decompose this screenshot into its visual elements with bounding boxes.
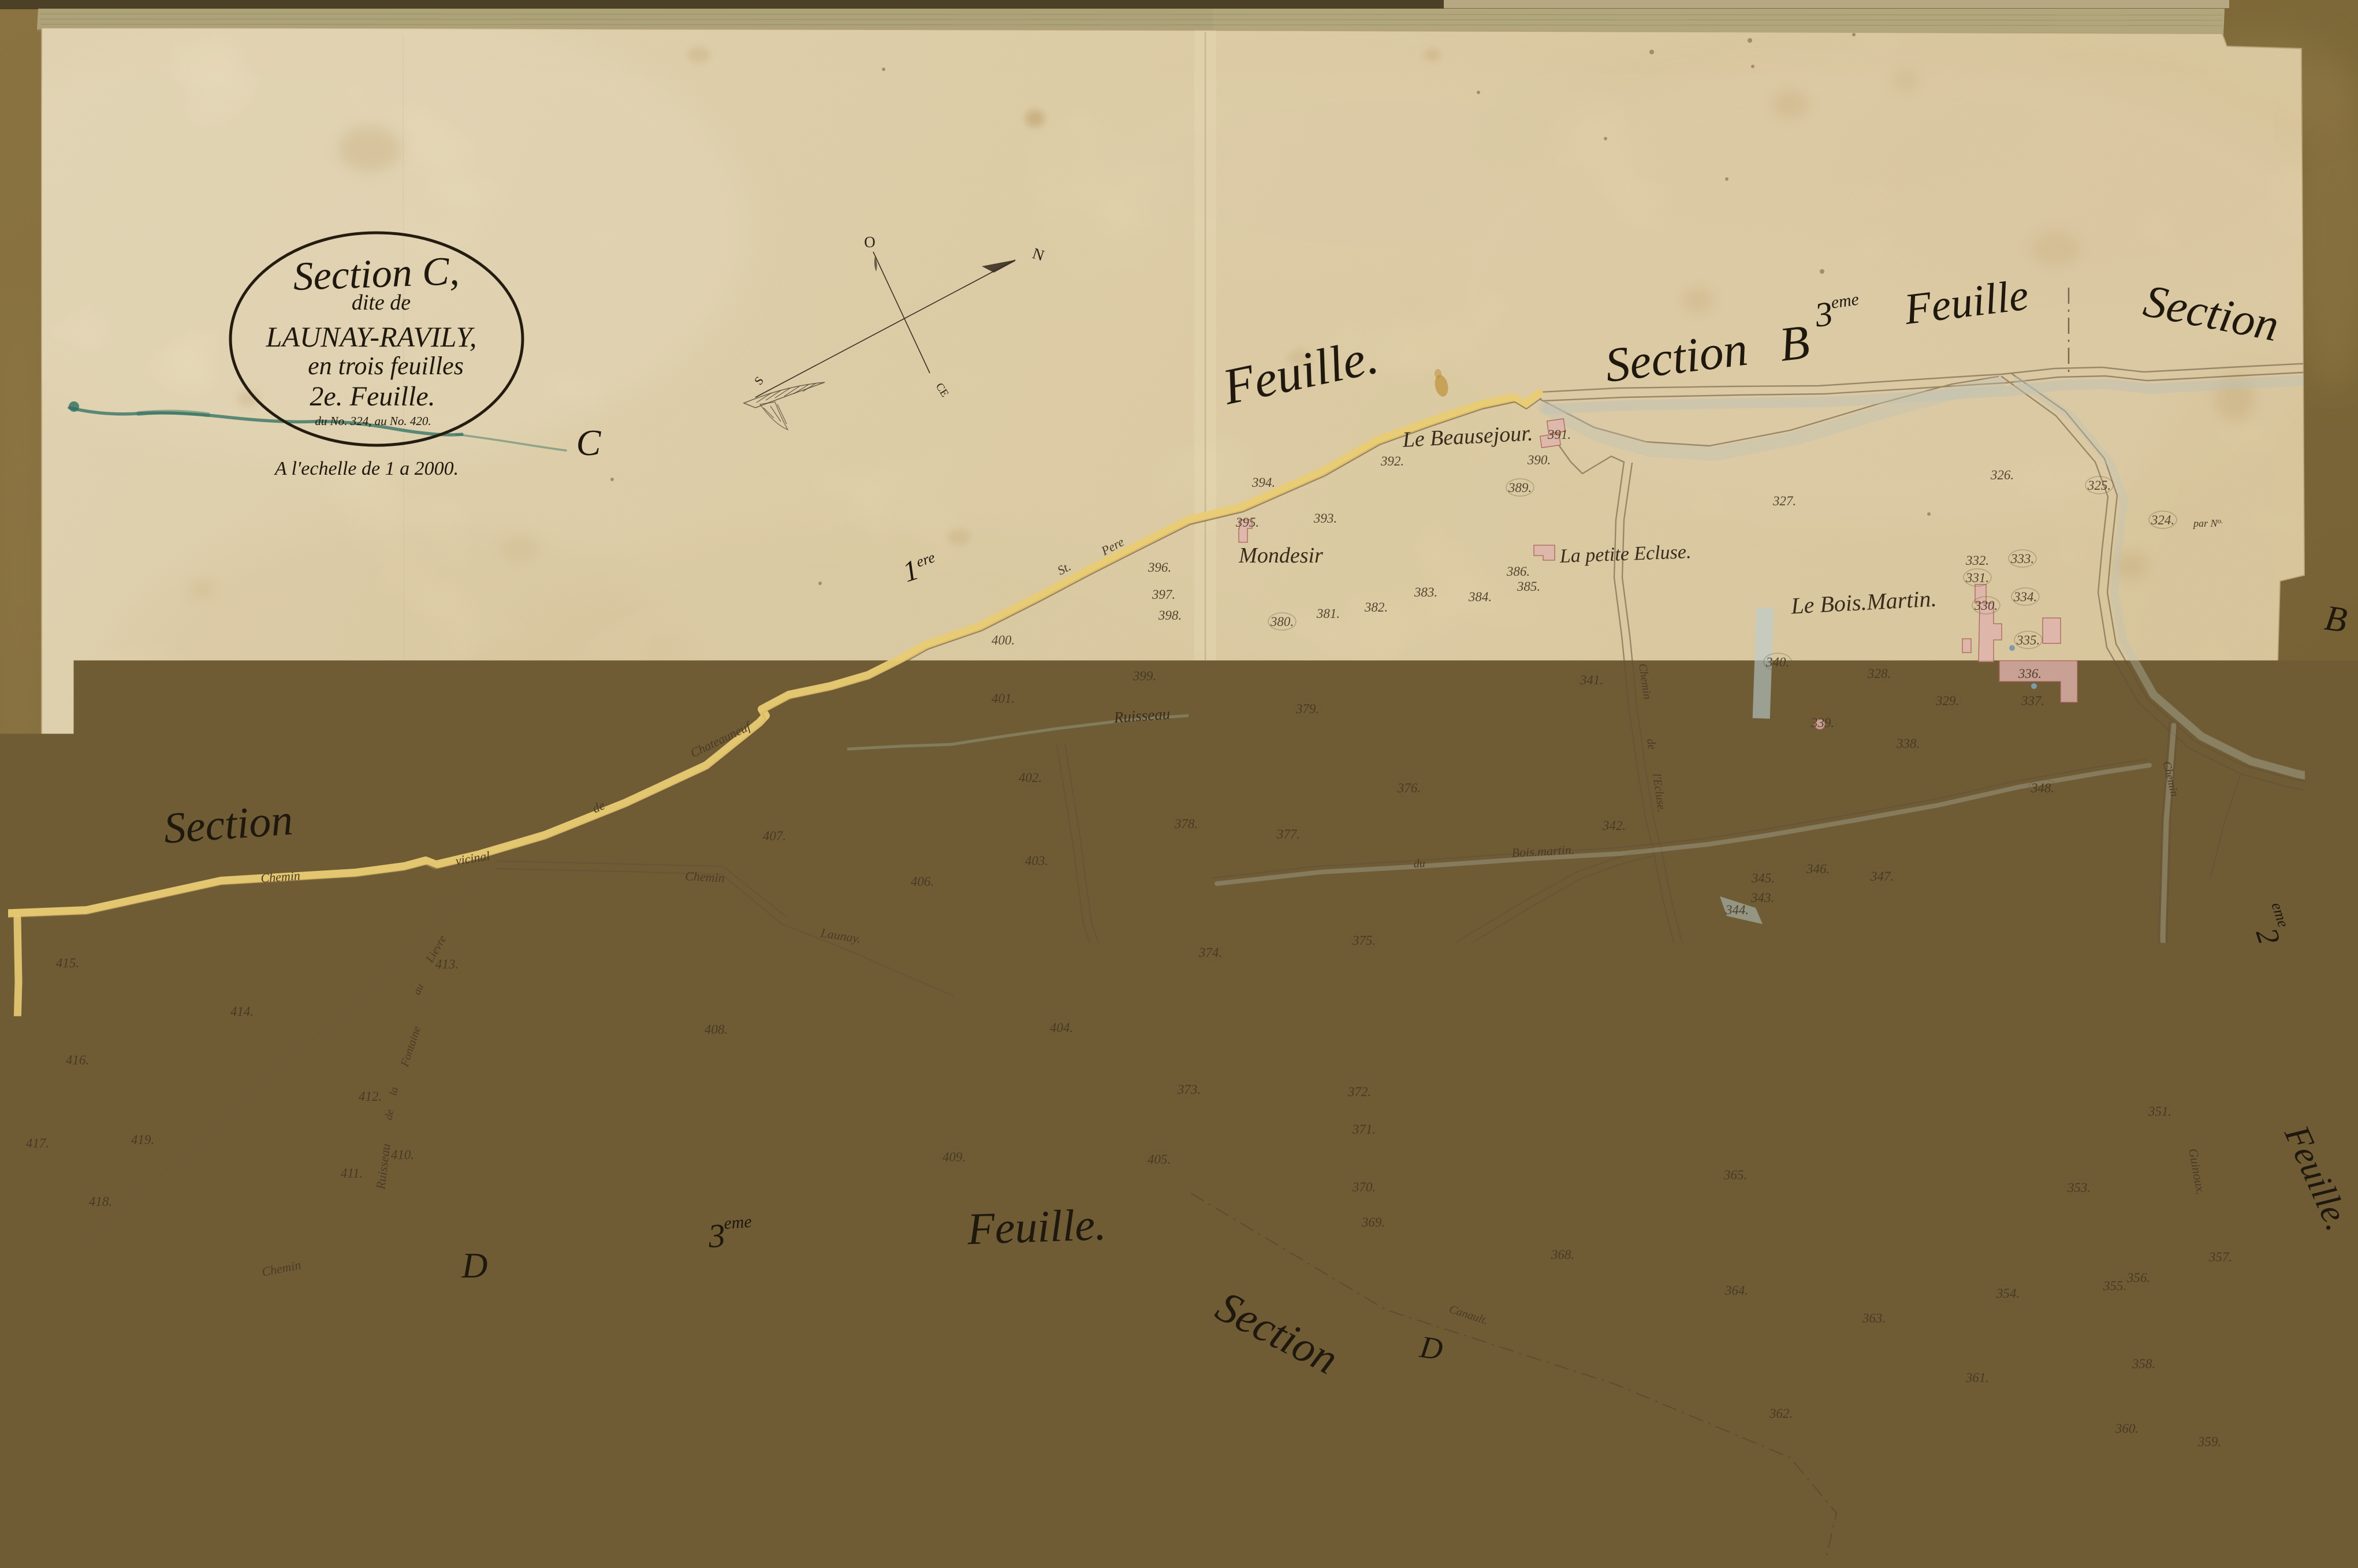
svg-text:403.: 403.	[1025, 854, 1048, 868]
svg-text:372.: 372.	[1347, 1085, 1371, 1099]
svg-text:354.: 354.	[1996, 1286, 2020, 1301]
svg-text:375.: 375.	[1352, 933, 1376, 948]
svg-text:369.: 369.	[1361, 1215, 1385, 1230]
svg-text:362.: 362.	[1769, 1406, 1793, 1421]
svg-text:358.: 358.	[2132, 1357, 2155, 1371]
svg-text:eme: eme	[1830, 290, 1860, 312]
svg-text:Feuille.: Feuille.	[966, 1199, 1107, 1254]
svg-text:378.: 378.	[1174, 817, 1198, 831]
svg-text:384.: 384.	[1468, 590, 1492, 604]
svg-text:364.: 364.	[1724, 1283, 1748, 1298]
svg-text:360.: 360.	[2115, 1421, 2139, 1436]
svg-text:404.: 404.	[1050, 1020, 1073, 1035]
svg-text:dite de: dite de	[352, 290, 411, 315]
svg-text:338.: 338.	[1896, 736, 1920, 751]
svg-text:LAUNAY-RAVILY,: LAUNAY-RAVILY,	[266, 321, 477, 353]
svg-text:332.: 332.	[1965, 553, 1989, 568]
svg-text:402.: 402.	[1019, 770, 1042, 785]
svg-text:grande: grande	[642, 1163, 679, 1178]
svg-text:du No. 324, au No. 420.: du No. 324, au No. 420.	[315, 414, 431, 428]
svg-text:399.: 399.	[1133, 669, 1156, 683]
svg-text:409.: 409.	[943, 1150, 966, 1164]
svg-text:348.: 348.	[2031, 781, 2054, 795]
svg-text:419.: 419.	[131, 1133, 154, 1147]
svg-text:400.: 400.	[992, 633, 1015, 647]
svg-text:376.: 376.	[1397, 781, 1421, 795]
svg-text:346.: 346.	[1806, 862, 1830, 876]
svg-text:D: D	[1417, 1329, 1445, 1367]
svg-text:412.: 412.	[359, 1089, 382, 1104]
svg-text:365.: 365.	[1723, 1168, 1747, 1182]
svg-text:405.: 405.	[1148, 1152, 1171, 1167]
svg-text:D: D	[461, 1246, 488, 1286]
svg-text:410.: 410.	[391, 1148, 414, 1162]
svg-text:415.: 415.	[56, 956, 79, 970]
svg-text:Beaulieu.: Beaulieu.	[2079, 1442, 2155, 1467]
svg-text:Mondesir: Mondesir	[1238, 543, 1323, 568]
svg-text:359.: 359.	[2197, 1435, 2221, 1449]
svg-text:342.: 342.	[1602, 818, 1626, 833]
svg-text:de: de	[1644, 738, 1658, 751]
svg-text:361.: 361.	[1965, 1370, 1989, 1385]
svg-text:324.: 324.	[2151, 513, 2174, 527]
svg-text:380.: 380.	[1270, 614, 1294, 629]
svg-text:328.: 328.	[1867, 666, 1891, 681]
svg-text:C: C	[576, 422, 602, 463]
svg-text:373.: 373.	[1177, 1082, 1201, 1097]
svg-text:420 Dme No.: 420 Dme No.	[238, 1213, 307, 1230]
svg-text:407.: 407.	[763, 829, 786, 843]
svg-text:331.: 331.	[1965, 571, 1989, 585]
svg-text:333.: 333.	[2010, 552, 2034, 566]
svg-text:413.: 413.	[435, 957, 459, 971]
svg-text:391.: 391.	[1547, 427, 1571, 442]
svg-text:St.: St.	[2191, 969, 2205, 982]
svg-text:381.: 381.	[1316, 606, 1340, 621]
svg-text:406.: 406.	[911, 874, 934, 889]
svg-text:330.: 330.	[1974, 598, 1998, 613]
svg-text:Section: Section	[138, 1315, 270, 1372]
svg-text:2e. Feuille.: 2e. Feuille.	[310, 381, 435, 412]
svg-text:368.: 368.	[1551, 1247, 1574, 1262]
svg-text:326.: 326.	[1990, 468, 2014, 482]
svg-text:334.: 334.	[2013, 590, 2037, 604]
svg-text:418.: 418.	[89, 1194, 112, 1209]
svg-text:340.: 340.	[1765, 655, 1789, 669]
svg-text:392.: 392.	[1380, 454, 1404, 468]
svg-text:357.: 357.	[2208, 1250, 2232, 1264]
svg-text:en trois feuilles: en trois feuilles	[308, 352, 464, 380]
svg-text:A l'echelle de 1 a 2000.: A l'echelle de 1 a 2000.	[274, 458, 459, 479]
svg-text:379.: 379.	[1295, 702, 1319, 716]
svg-text:416.: 416.	[66, 1053, 89, 1067]
svg-text:de: de	[1005, 1162, 1017, 1176]
svg-text:363.: 363.	[1862, 1311, 1886, 1325]
svg-text:398.: 398.	[1158, 608, 1182, 623]
svg-text:341.: 341.	[1580, 673, 1603, 687]
svg-text:Chemin: Chemin	[260, 868, 301, 885]
svg-text:Section: Section	[162, 795, 295, 852]
svg-text:395.: 395.	[1235, 515, 1259, 530]
svg-text:339.: 339.	[1811, 716, 1834, 730]
svg-text:356.: 356.	[2126, 1271, 2150, 1285]
svg-text:Chateauneuf: Chateauneuf	[1149, 1169, 1216, 1186]
svg-text:eme: eme	[723, 1212, 752, 1233]
svg-text:414.: 414.	[230, 1004, 254, 1019]
svg-text:408.: 408.	[705, 1022, 728, 1037]
svg-text:O: O	[864, 233, 876, 251]
svg-text:344.: 344.	[1725, 903, 1749, 917]
svg-text:336.: 336.	[2018, 666, 2042, 681]
svg-text:Chemin: Chemin	[685, 869, 725, 885]
svg-text:383.: 383.	[1414, 585, 1437, 599]
svg-text:345.: 345.	[1751, 871, 1775, 885]
svg-text:396.: 396.	[1148, 560, 1171, 575]
svg-text:371.: 371.	[1352, 1122, 1376, 1137]
svg-text:390.: 390.	[1527, 453, 1551, 467]
svg-text:411.: 411.	[341, 1166, 363, 1180]
svg-text:325.: 325.	[2087, 478, 2111, 493]
svg-text:communication: communication	[839, 1164, 917, 1179]
svg-text:351.: 351.	[2148, 1104, 2171, 1119]
svg-text:370.: 370.	[1352, 1180, 1376, 1194]
svg-text:du: du	[1413, 857, 1425, 870]
svg-text:329.: 329.	[1935, 694, 1959, 708]
svg-text:347.: 347.	[1870, 869, 1894, 884]
svg-text:394.: 394.	[1251, 475, 1275, 490]
svg-text:353.: 353.	[2067, 1180, 2091, 1195]
svg-text:417.: 417.	[26, 1136, 49, 1150]
svg-text:377.: 377.	[1276, 827, 1300, 841]
svg-text:401.: 401.	[992, 691, 1015, 706]
svg-text:389.: 389.	[1508, 481, 1532, 495]
svg-text:335.: 335.	[2016, 633, 2040, 647]
svg-text:385.: 385.	[1517, 579, 1540, 594]
svg-text:397.: 397.	[1152, 587, 1175, 602]
svg-text:386.: 386.	[1506, 564, 1530, 579]
svg-text:393.: 393.	[1313, 511, 1337, 526]
svg-text:382.: 382.	[1364, 600, 1388, 614]
svg-text:337.: 337.	[2021, 694, 2044, 708]
svg-text:327.: 327.	[1772, 494, 1796, 508]
svg-text:de: de	[2186, 925, 2200, 938]
svg-text:355.: 355.	[2103, 1279, 2126, 1293]
svg-text:343.: 343.	[1750, 891, 1774, 905]
svg-text:374.: 374.	[1198, 945, 1222, 960]
